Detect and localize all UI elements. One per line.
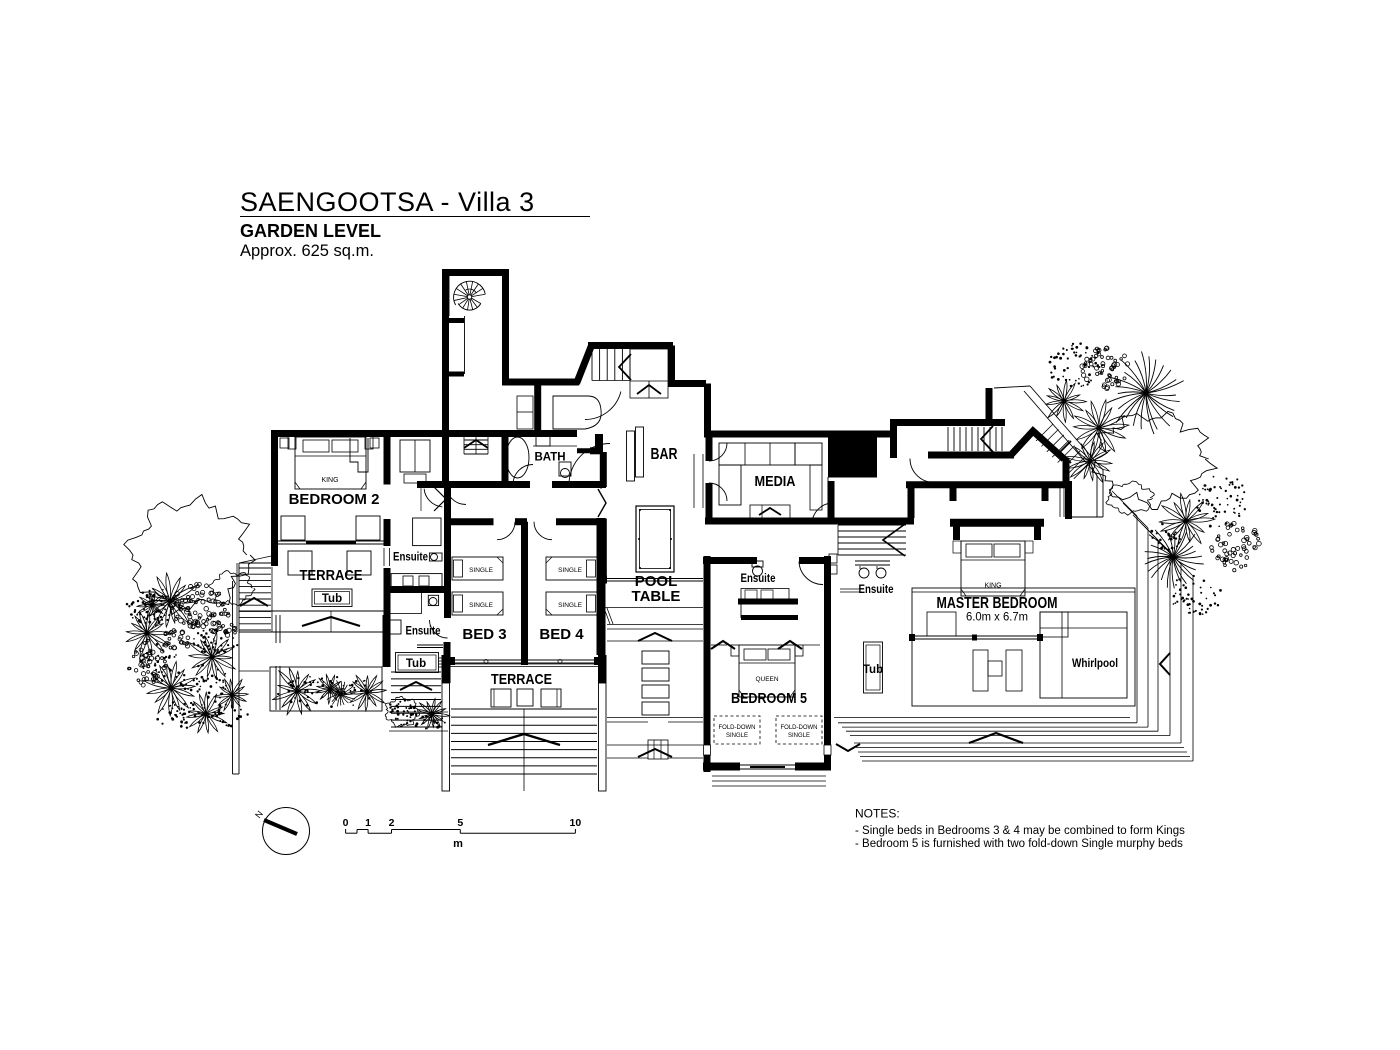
svg-text:FOLD-DOWN: FOLD-DOWN <box>719 725 756 731</box>
svg-text:- Bedroom 5 is furnished with: - Bedroom 5 is furnished with two fold-d… <box>855 838 1183 850</box>
svg-text:Whirlpool: Whirlpool <box>1072 656 1118 670</box>
svg-text:TABLE: TABLE <box>632 588 681 605</box>
svg-text:SINGLE: SINGLE <box>726 733 748 739</box>
svg-text:5: 5 <box>457 817 463 829</box>
svg-text:Ensuite: Ensuite <box>741 573 776 585</box>
svg-text:Ensuite: Ensuite <box>393 552 428 564</box>
svg-text:SINGLE: SINGLE <box>558 567 583 574</box>
svg-text:NOTES:: NOTES: <box>855 807 900 821</box>
svg-text:10: 10 <box>570 817 582 829</box>
svg-text:GARDEN LEVEL: GARDEN LEVEL <box>240 221 381 241</box>
svg-text:Ensuite: Ensuite <box>859 584 894 596</box>
svg-text:TERRACE: TERRACE <box>491 671 552 688</box>
svg-text:MEDIA: MEDIA <box>755 473 796 490</box>
svg-text:BEDROOM 2: BEDROOM 2 <box>289 491 380 508</box>
svg-text:KING: KING <box>984 583 1001 590</box>
svg-text:BEDROOM 5: BEDROOM 5 <box>731 690 807 707</box>
svg-text:BAR: BAR <box>651 446 678 463</box>
svg-text:QUEEN: QUEEN <box>755 676 778 683</box>
svg-text:Approx. 625 sq.m.: Approx. 625 sq.m. <box>240 242 374 260</box>
svg-text:KING: KING <box>321 477 338 484</box>
svg-text:SINGLE: SINGLE <box>788 733 810 739</box>
svg-text:TERRACE: TERRACE <box>300 567 363 584</box>
svg-text:6.0m x 6.7m: 6.0m x 6.7m <box>966 612 1028 624</box>
svg-text:m: m <box>453 838 463 850</box>
svg-text:MASTER BEDROOM: MASTER BEDROOM <box>937 595 1058 612</box>
svg-text:BED 3: BED 3 <box>462 626 506 643</box>
svg-text:Tub: Tub <box>406 658 426 670</box>
svg-text:SINGLE: SINGLE <box>469 567 494 574</box>
svg-text:- Single beds in Bedrooms 3 &: - Single beds in Bedrooms 3 & 4 may be c… <box>855 825 1185 837</box>
svg-text:Tub: Tub <box>322 593 342 605</box>
svg-text:Tub: Tub <box>863 664 883 676</box>
svg-text:Ensuite: Ensuite <box>406 626 441 638</box>
svg-text:2: 2 <box>389 817 395 829</box>
svg-text:BED 4: BED 4 <box>539 626 584 643</box>
svg-text:SINGLE: SINGLE <box>469 602 494 609</box>
svg-text:SAENGOOTSA - Villa 3: SAENGOOTSA - Villa 3 <box>240 187 535 217</box>
svg-text:0: 0 <box>343 817 349 829</box>
svg-text:1: 1 <box>365 817 371 829</box>
svg-text:FOLD-DOWN: FOLD-DOWN <box>781 725 818 731</box>
svg-text:SINGLE: SINGLE <box>558 602 583 609</box>
